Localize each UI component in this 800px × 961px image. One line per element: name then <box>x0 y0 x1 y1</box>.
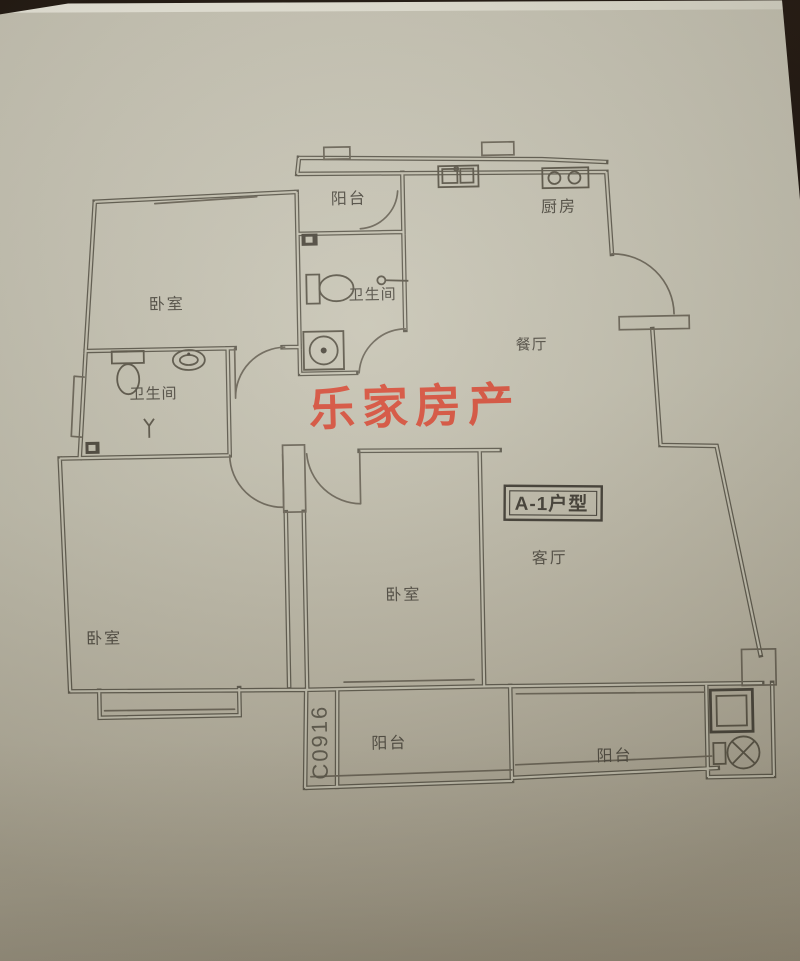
basin-icon <box>710 689 753 732</box>
room-label-kitchen: 厨房 <box>541 198 577 217</box>
toilet-icon <box>306 274 354 304</box>
meter-box-icon <box>301 234 317 246</box>
room-label-bedroom-middle: 卧室 <box>385 586 421 605</box>
room-label-bathroom-top: 卫生间 <box>348 286 396 304</box>
room-label-balcony-bottom-middle: 阳台 <box>371 734 407 753</box>
floor-plan-drawing: A-1户型 阳台 厨房 卫生间 卧室 卫生间 餐厅 客厅 卧室 卧室 阳台 阳台… <box>0 0 800 961</box>
plan-code-text: C0916 <box>306 705 332 780</box>
room-label-living: 客厅 <box>532 549 568 568</box>
unit-type-box: A-1户型 <box>505 486 602 521</box>
meter-box-icon <box>85 442 99 454</box>
washing-machine-icon <box>713 736 760 769</box>
floor-drain-icon <box>144 419 154 438</box>
room-label-bathroom-left: 卫生间 <box>129 385 177 403</box>
watermark-text: 乐家房产 <box>308 378 521 436</box>
washing-machine-icon <box>303 331 344 370</box>
room-label-bedroom-top-left: 卧室 <box>149 295 185 314</box>
kitchen-sink-icon <box>438 165 478 187</box>
unit-type-label: A-1户型 <box>515 492 589 516</box>
wall-column <box>283 445 306 512</box>
walls <box>54 149 774 792</box>
bathroom-sink-icon <box>173 350 205 371</box>
floor-plan-photo: A-1户型 阳台 厨房 卫生间 卧室 卫生间 餐厅 客厅 卧室 卧室 阳台 阳台… <box>0 0 800 961</box>
room-label-balcony-top: 阳台 <box>331 190 367 209</box>
room-label-dining: 餐厅 <box>515 336 547 354</box>
room-label-bedroom-bottom-left: 卧室 <box>86 629 122 648</box>
room-label-balcony-bottom-right: 阳台 <box>596 747 632 766</box>
